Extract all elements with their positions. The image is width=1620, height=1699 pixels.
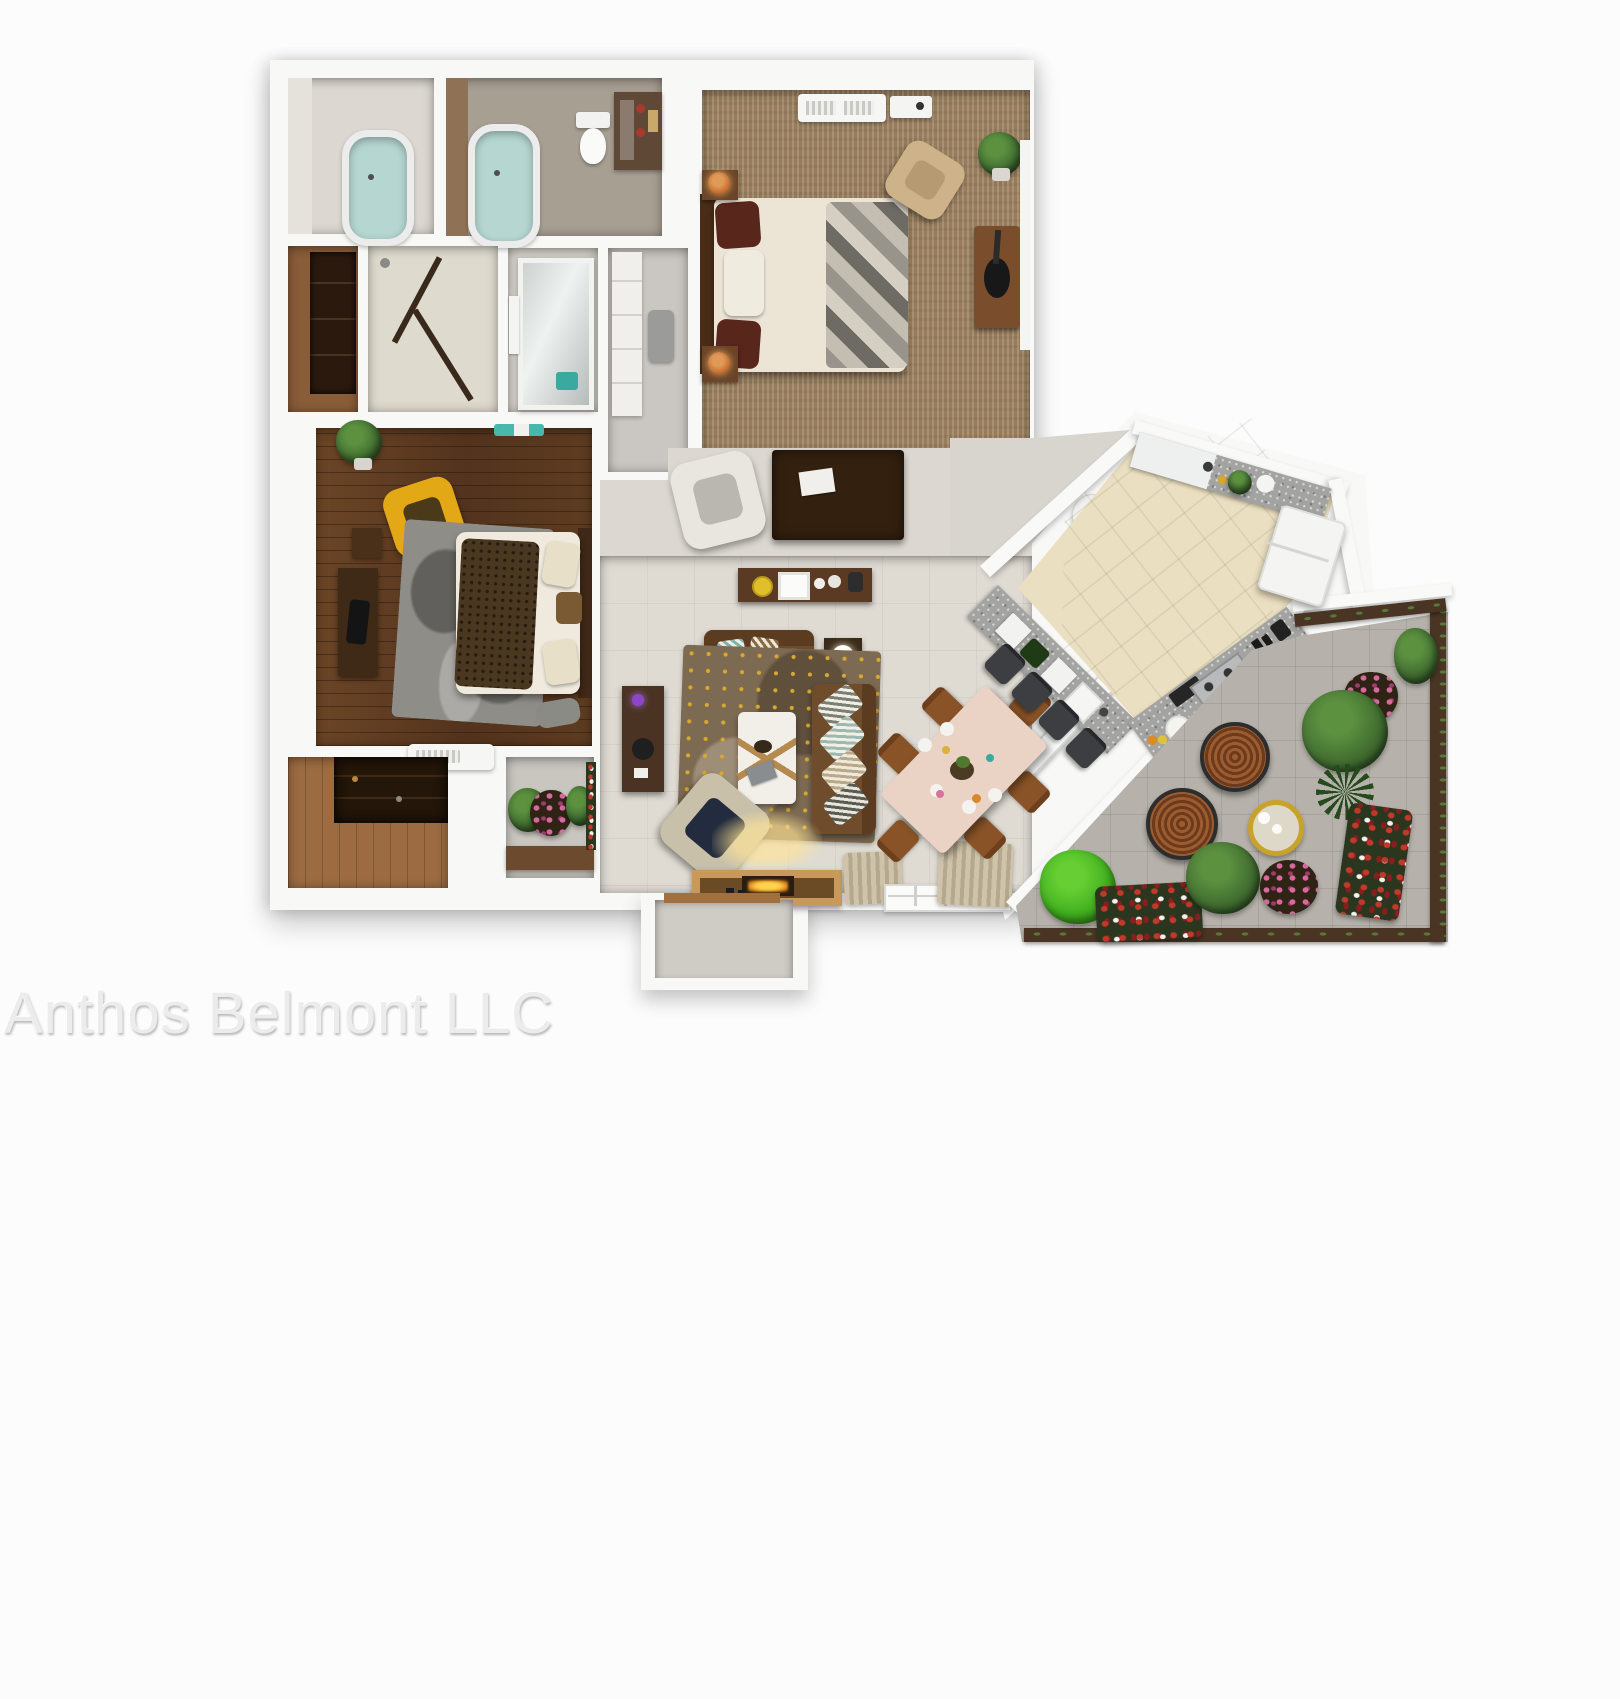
console-white-frame — [778, 572, 810, 600]
pink-flower-bush — [1260, 860, 1318, 914]
hall-floor — [600, 480, 670, 560]
storage-shelf-unit — [334, 757, 448, 823]
flower-bed-bottom — [1095, 881, 1204, 942]
dining-plate — [918, 738, 932, 752]
centerpiece-greens — [956, 756, 970, 768]
bathroom-1-stone-wall — [288, 78, 312, 234]
wardrobe-interior — [310, 252, 356, 394]
master-closet-door — [1020, 140, 1030, 350]
dining-decor-teal — [986, 754, 994, 762]
shelf-decor-dot — [352, 776, 358, 782]
vent-grille — [844, 101, 874, 115]
copper-lamp — [708, 172, 730, 194]
patio-bush — [1302, 690, 1388, 772]
media-console-item — [634, 768, 648, 778]
counter-plant — [1225, 468, 1255, 498]
console-bowl — [828, 575, 841, 588]
console-dark-vase — [848, 572, 863, 592]
coffee-table-bowl — [754, 740, 772, 753]
bathtub-drain — [494, 170, 500, 176]
patio-bush-corner — [1394, 628, 1438, 684]
fire-glow — [748, 880, 788, 892]
projector-unit — [890, 96, 932, 118]
entry-door-sill — [664, 893, 780, 903]
toilet-tank — [576, 112, 610, 128]
hanging-clothes — [648, 310, 674, 362]
rattan-lounge-chair — [1200, 722, 1270, 792]
entry-porch-floor — [655, 900, 793, 978]
toilet-bowl — [580, 128, 606, 164]
vanity-red-decor — [636, 128, 645, 137]
fruit-bowl — [1217, 474, 1228, 485]
master-white-pillow — [724, 250, 764, 316]
closet-shelving — [612, 252, 642, 416]
dining-decor-yellow — [942, 746, 950, 754]
console-bowl — [814, 578, 825, 589]
plant-pot — [354, 458, 372, 470]
dining-plate — [988, 788, 1002, 802]
patio-planter-bottom — [1024, 928, 1444, 942]
loveseat-back — [862, 684, 876, 834]
garden-pink-flowers — [530, 790, 572, 836]
bathroom-1-bathtub — [342, 130, 414, 246]
master-bathroom-wood-panel — [446, 78, 468, 236]
shelf-decor-dot — [396, 796, 402, 802]
patio-bush — [1186, 842, 1260, 914]
floor-plan-stage: Anthos Belmont LLC — [0, 0, 1620, 1080]
tray-plate — [1258, 812, 1270, 824]
watermark: Anthos Belmont LLC — [4, 980, 554, 1047]
faucet — [1097, 706, 1110, 719]
bathtub-drain — [368, 174, 374, 180]
towel-stack — [509, 296, 519, 354]
projector-lens — [916, 102, 924, 110]
master-geometric-blanket — [826, 202, 908, 368]
white-plate — [1254, 473, 1276, 495]
desk-notepad — [798, 468, 835, 496]
nook-dark-desk — [772, 450, 904, 540]
garden-planter-box — [506, 846, 594, 870]
purple-lamp — [632, 694, 644, 706]
teal-shelf-decor — [494, 424, 544, 436]
bedroom2-nightstand — [352, 528, 382, 558]
vent-grille — [806, 101, 836, 115]
vanity-red-decor — [636, 104, 645, 113]
vanity-mirror-glint — [620, 100, 634, 160]
media-console-disc — [632, 738, 654, 760]
garden-flower-strip — [586, 762, 596, 850]
coffee-maker — [1269, 618, 1292, 642]
teal-basket — [556, 372, 578, 390]
coffee-table — [738, 712, 796, 804]
dining-plate — [940, 722, 954, 736]
bed2-brown-pillow — [556, 592, 582, 624]
vanity-gold-tray — [648, 110, 658, 132]
fireplace-light-pool — [712, 812, 822, 872]
master-bathtub — [468, 124, 540, 248]
dining-decor-pink — [936, 790, 944, 798]
bed2-pillow — [541, 638, 581, 686]
console-yellow-plate — [752, 576, 773, 597]
master-dark-pillow — [714, 201, 761, 250]
copper-lamp — [708, 352, 730, 374]
tray-plate — [1272, 824, 1282, 834]
shower-head — [380, 258, 390, 268]
bed2-patterned-blanket — [454, 538, 540, 690]
window-curtain-right — [936, 840, 1013, 908]
plant-pot — [992, 168, 1010, 181]
dining-decor-orange — [972, 794, 981, 803]
